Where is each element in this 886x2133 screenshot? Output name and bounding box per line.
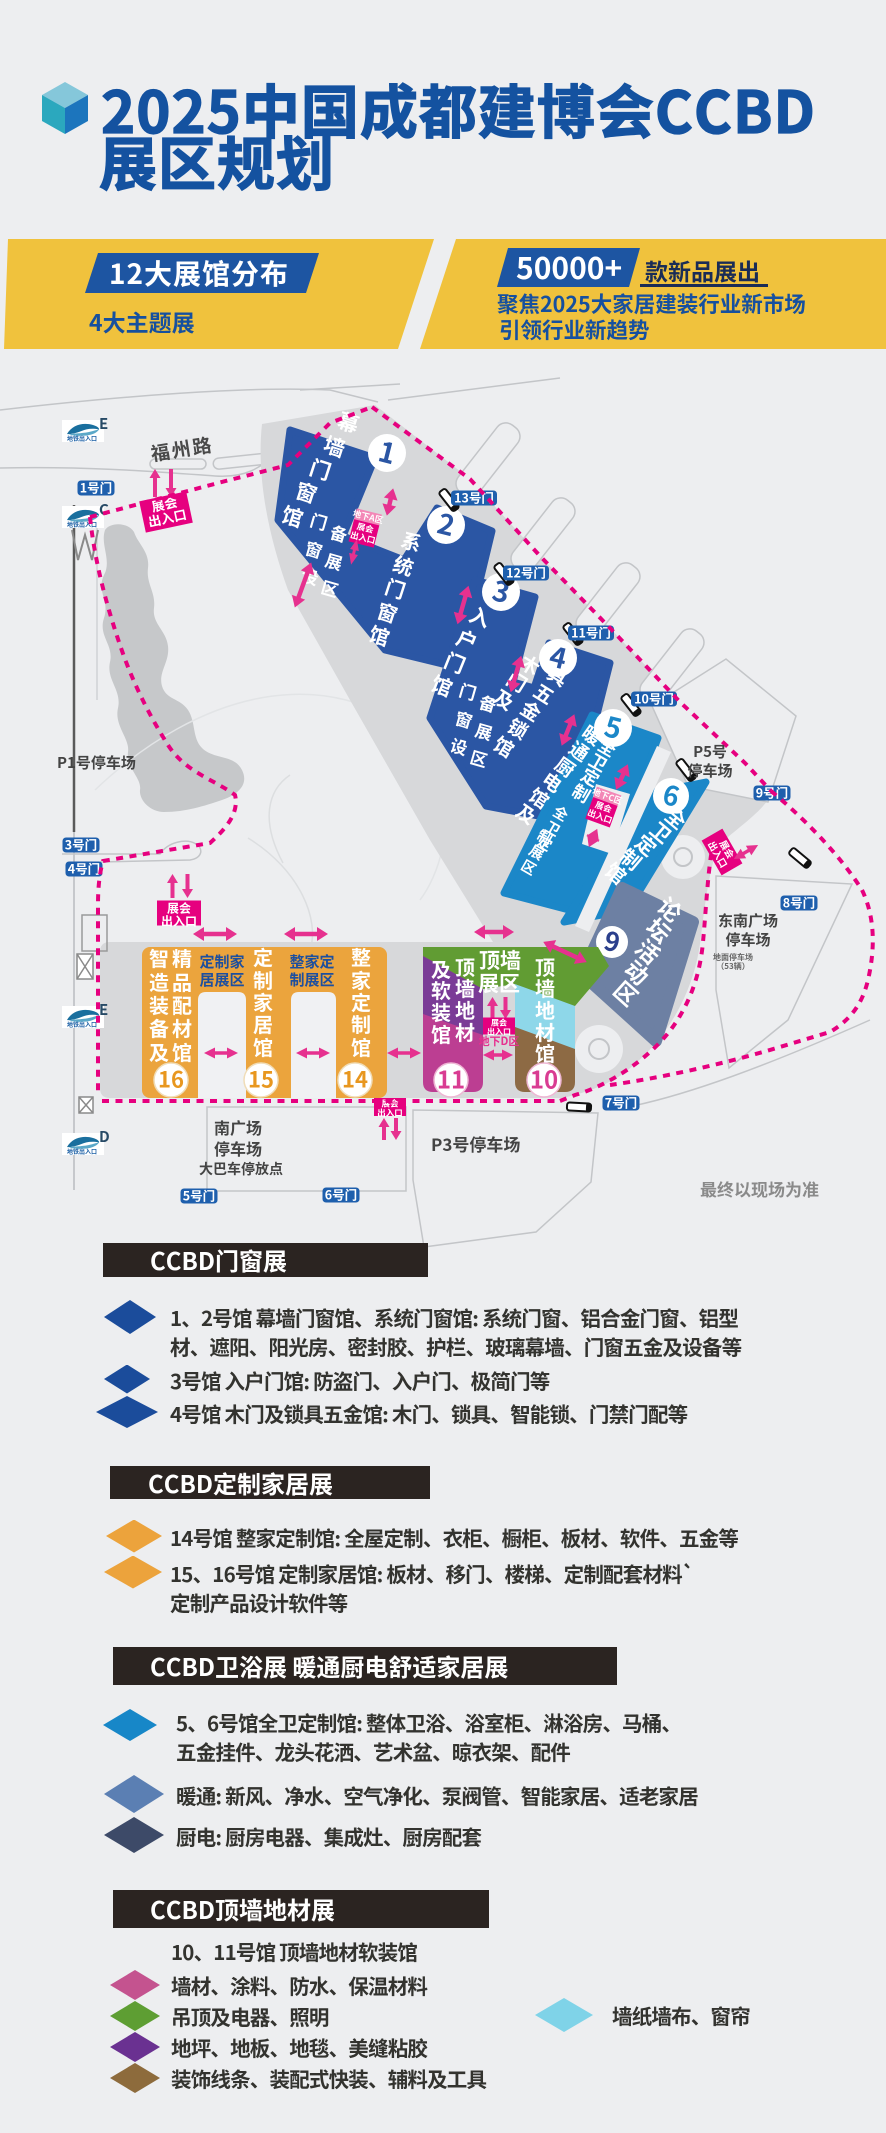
svg-text:1号门: 1号门	[80, 478, 112, 497]
svg-text:7号门: 7号门	[605, 1093, 637, 1112]
svg-text:居展区: 居展区	[199, 969, 244, 990]
svg-text:制展区: 制展区	[289, 969, 334, 990]
svg-text:馆: 馆	[253, 1032, 273, 1061]
svg-text:E: E	[99, 413, 108, 434]
svg-text:10: 10	[530, 1060, 558, 1095]
svg-text:4大主题展: 4大主题展	[89, 304, 195, 338]
svg-text:最终以现场为准: 最终以现场为准	[700, 1176, 819, 1201]
svg-text:馆: 馆	[431, 1019, 451, 1048]
svg-text:地铁出入口: 地铁出入口	[67, 520, 97, 529]
svg-text:5号门: 5号门	[183, 1186, 215, 1205]
svg-text:馆: 馆	[172, 1037, 192, 1066]
svg-text:P3号停车场: P3号停车场	[431, 1131, 520, 1156]
svg-text:4号门: 4号门	[68, 859, 100, 878]
svg-text:11: 11	[437, 1060, 465, 1095]
svg-text:款新品展出: 款新品展出	[645, 253, 760, 287]
svg-text:50000+: 50000+	[516, 244, 622, 288]
svg-text:地下D区: 地下D区	[479, 1033, 520, 1049]
svg-text:引领行业新趋势: 引领行业新趋势	[499, 314, 650, 345]
svg-text:大巴车停放点: 大巴车停放点	[199, 1159, 283, 1179]
svg-text:停车场: 停车场	[214, 1136, 262, 1160]
svg-text:馆: 馆	[351, 1032, 371, 1061]
svg-text:地铁出入口: 地铁出入口	[67, 434, 97, 443]
svg-text:3号门: 3号门	[65, 835, 97, 854]
svg-text:12大展馆分布: 12大展馆分布	[109, 253, 289, 293]
svg-text:出入口: 出入口	[161, 913, 197, 930]
svg-text:P5号: P5号	[693, 741, 727, 762]
svg-text:8号门: 8号门	[783, 893, 815, 912]
svg-text:6号门: 6号门	[325, 1185, 357, 1204]
svg-text:P1号停车场: P1号停车场	[57, 752, 136, 773]
svg-text:出入口: 出入口	[377, 1107, 403, 1119]
svg-text:C: C	[99, 499, 109, 520]
svg-text:16: 16	[158, 1063, 184, 1095]
svg-text:13号门: 13号门	[454, 488, 494, 507]
svg-text:15: 15	[248, 1063, 274, 1095]
svg-text:E: E	[99, 999, 108, 1020]
svg-text:14: 14	[342, 1063, 368, 1095]
svg-text:及: 及	[149, 1037, 169, 1066]
svg-text:停车场: 停车场	[725, 929, 770, 950]
svg-text:展区: 展区	[478, 968, 520, 998]
svg-text:（53辆）: （53辆）	[716, 961, 749, 972]
svg-text:东南广场: 东南广场	[718, 910, 778, 931]
svg-text:地铁出入口: 地铁出入口	[67, 1020, 97, 1029]
svg-text:12号门: 12号门	[506, 563, 546, 582]
svg-text:停车场: 停车场	[687, 760, 732, 781]
svg-text:D: D	[99, 1126, 110, 1147]
svg-text:材: 材	[455, 1017, 475, 1046]
svg-text:11号门: 11号门	[571, 623, 611, 642]
svg-text:地铁出入口: 地铁出入口	[67, 1147, 97, 1156]
